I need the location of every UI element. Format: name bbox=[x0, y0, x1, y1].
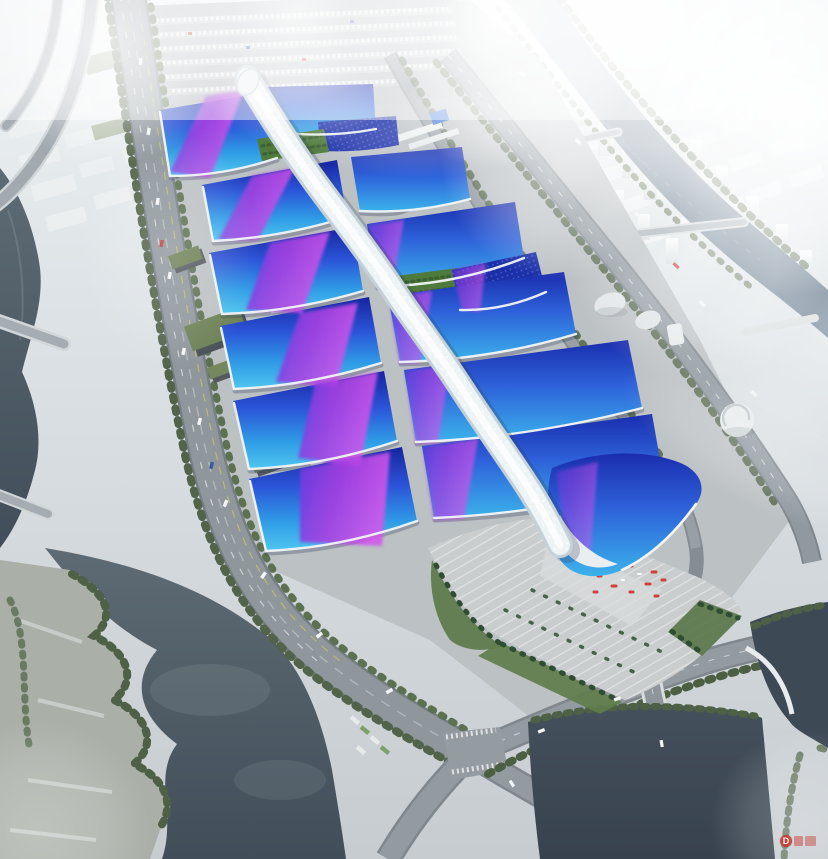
aerial-rendering: D bbox=[0, 0, 828, 859]
watermark-glyph-block bbox=[794, 836, 803, 846]
watermark: D bbox=[780, 835, 816, 847]
rendering-canvas bbox=[0, 0, 828, 859]
watermark-glyph-block bbox=[805, 836, 816, 846]
watermark-logo-icon: D bbox=[780, 835, 792, 847]
